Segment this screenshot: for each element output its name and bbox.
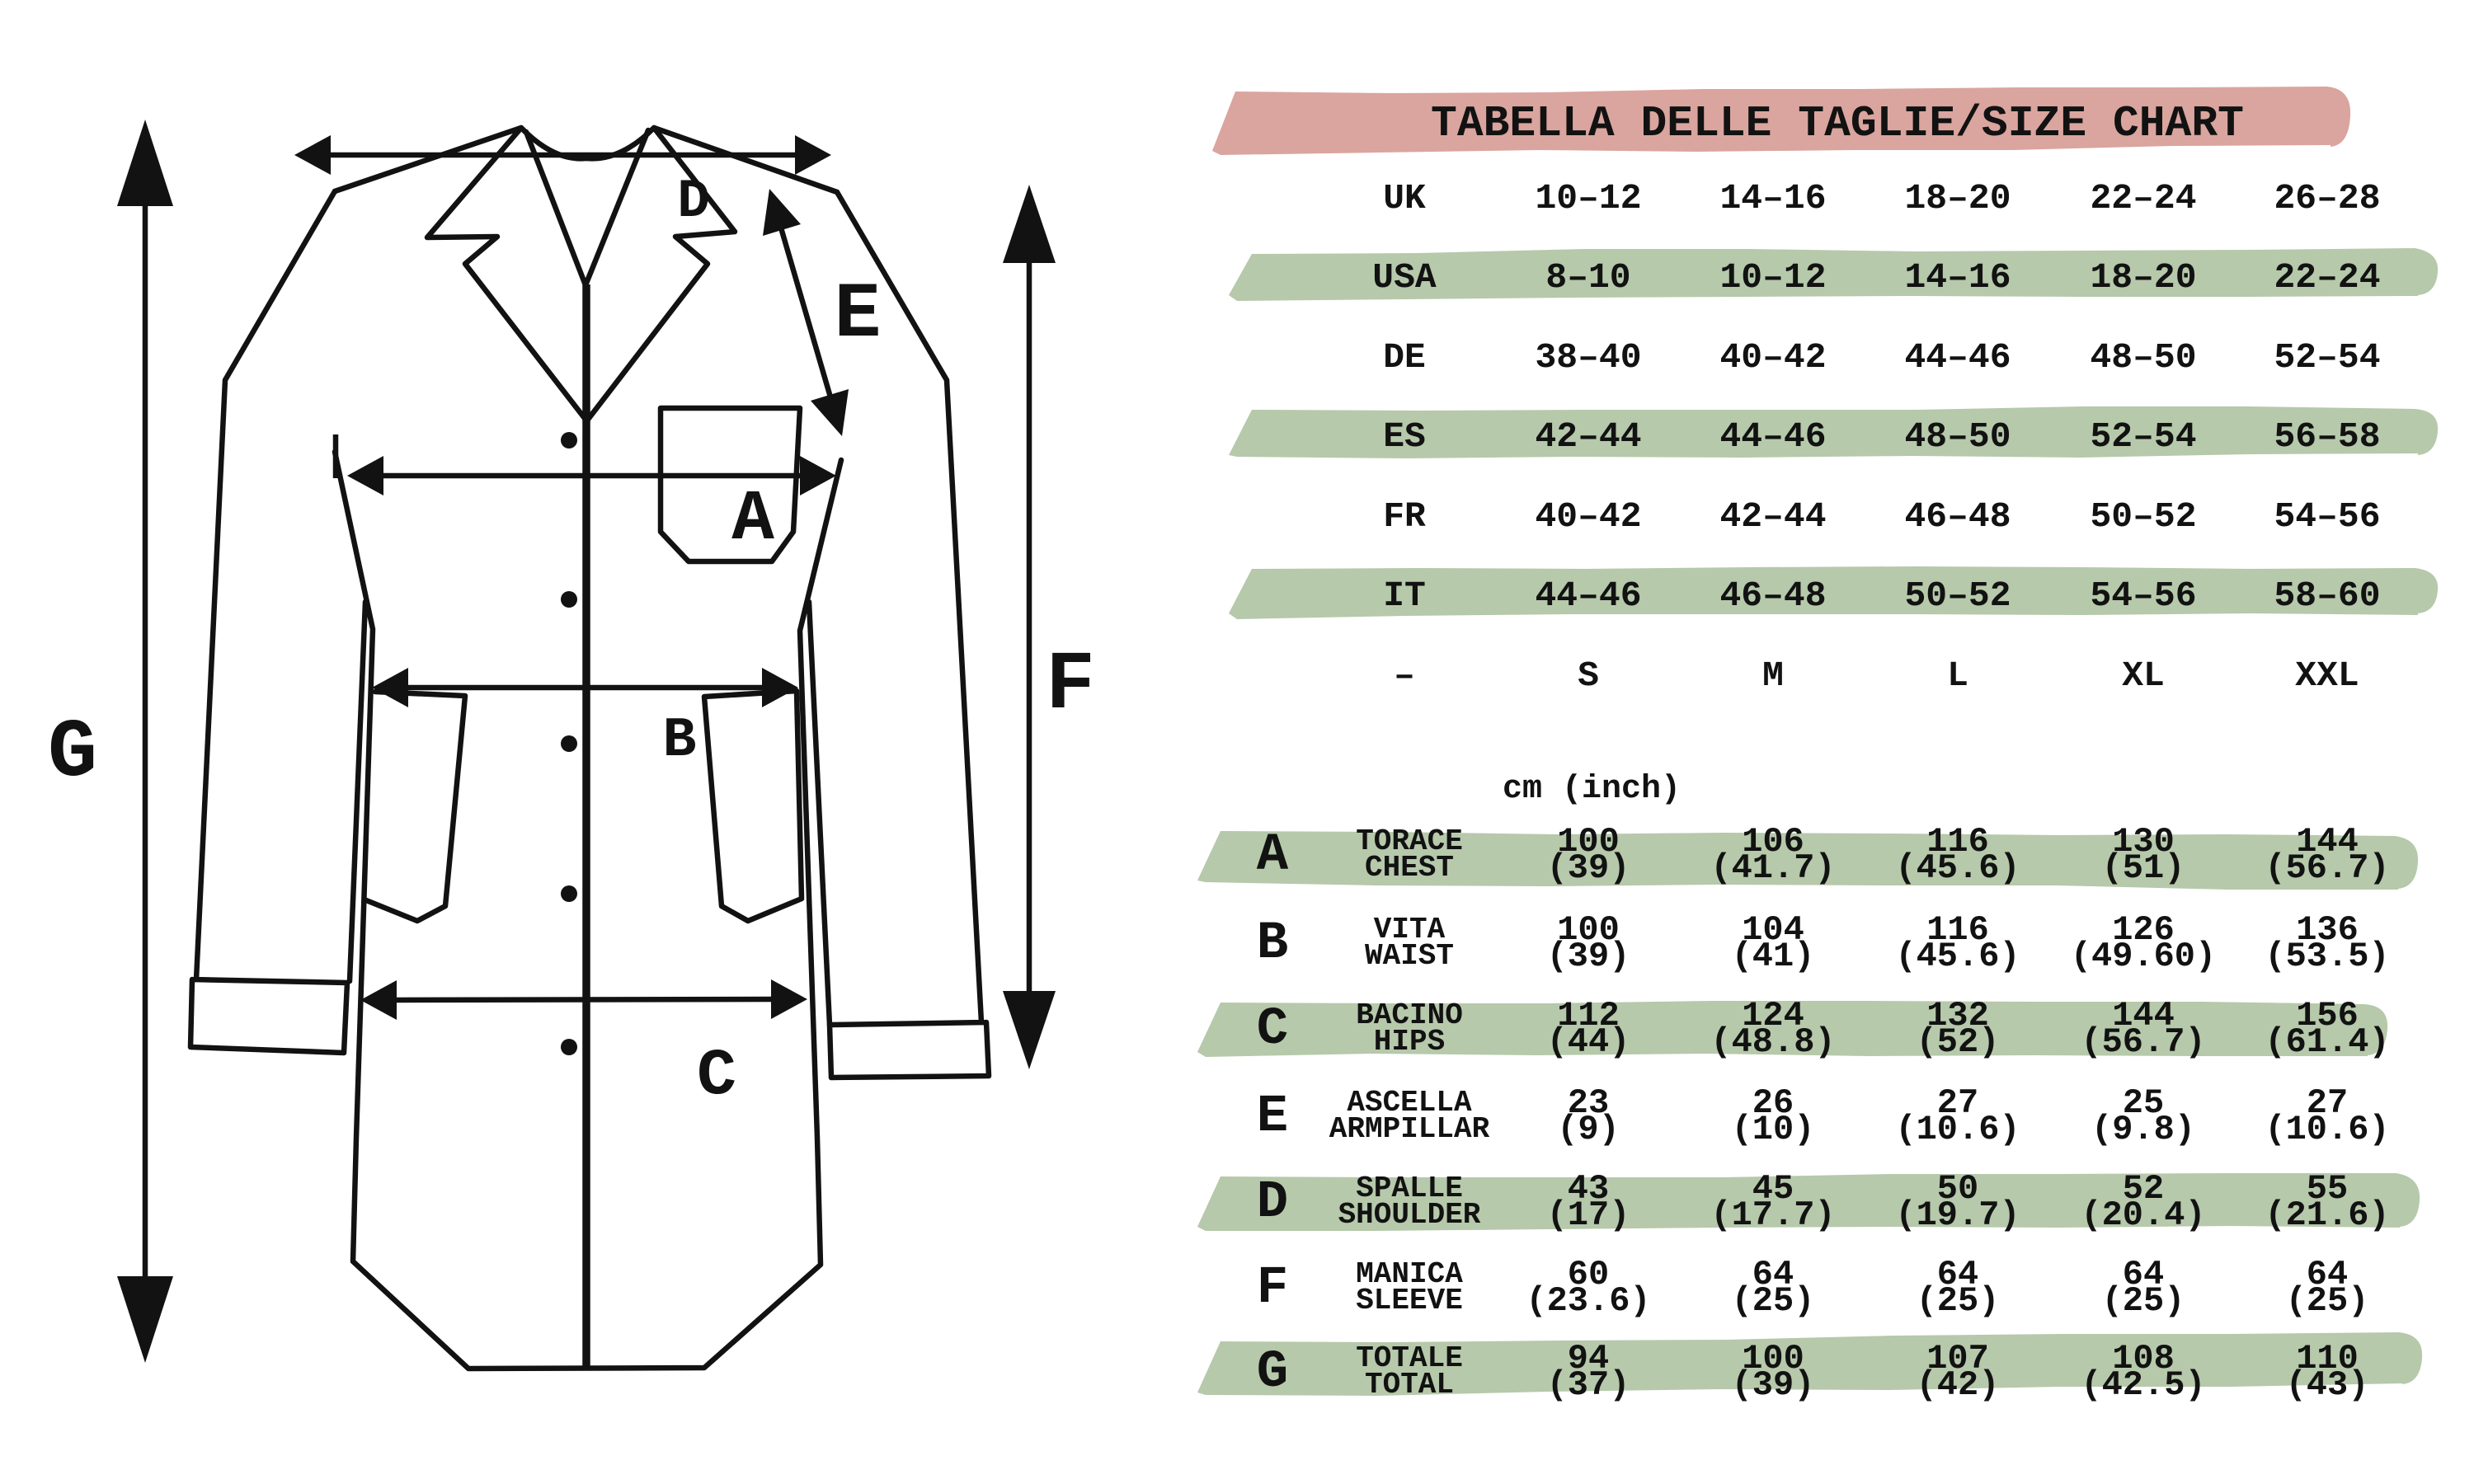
svg-text:IT: IT: [1383, 575, 1426, 616]
svg-text:42–44: 42–44: [1535, 416, 1641, 457]
svg-text:B: B: [663, 709, 697, 773]
svg-text:cm (inch): cm (inch): [1503, 771, 1681, 808]
svg-text:C: C: [1257, 1000, 1288, 1059]
svg-text:48–50: 48–50: [2090, 337, 2196, 378]
svg-text:52–54: 52–54: [2274, 337, 2380, 378]
svg-text:(10): (10): [1732, 1110, 1815, 1149]
svg-text:52–54: 52–54: [2090, 416, 2196, 457]
svg-text:(10.6): (10.6): [2265, 1110, 2389, 1149]
svg-text:B: B: [1257, 914, 1288, 974]
svg-text:A: A: [1257, 826, 1289, 885]
svg-text:UK: UK: [1383, 178, 1426, 218]
svg-text:(45.6): (45.6): [1895, 848, 2020, 888]
svg-text:8–10: 8–10: [1545, 257, 1630, 298]
svg-text:(56.7): (56.7): [2265, 848, 2389, 888]
svg-text:(51): (51): [2102, 848, 2185, 888]
svg-text:SHOULDER: SHOULDER: [1338, 1198, 1481, 1232]
svg-text:XL: XL: [2122, 655, 2165, 696]
svg-text:USA: USA: [1372, 257, 1437, 298]
svg-text:40–42: 40–42: [1719, 337, 1826, 378]
svg-text:(17.7): (17.7): [1710, 1195, 1835, 1235]
svg-text:48–50: 48–50: [1904, 416, 2011, 457]
svg-text:G: G: [48, 707, 97, 801]
svg-text:(39): (39): [1547, 848, 1630, 888]
svg-text:14–16: 14–16: [1719, 178, 1826, 218]
svg-text:(52): (52): [1917, 1022, 2000, 1062]
svg-text:50–52: 50–52: [2090, 496, 2196, 537]
svg-text:C: C: [697, 1039, 736, 1114]
svg-text:(25): (25): [1732, 1281, 1815, 1321]
svg-text:54–56: 54–56: [2274, 496, 2380, 537]
svg-text:(61.4): (61.4): [2265, 1022, 2389, 1062]
svg-text:(20.4): (20.4): [2081, 1195, 2205, 1235]
svg-text:44–46: 44–46: [1535, 575, 1641, 616]
svg-text:(53.5): (53.5): [2265, 937, 2389, 976]
svg-text:CHEST: CHEST: [1365, 851, 1454, 885]
svg-text:E: E: [1257, 1087, 1288, 1147]
svg-text:14–16: 14–16: [1904, 257, 2011, 298]
svg-text:D: D: [1257, 1173, 1288, 1233]
svg-text:(9): (9): [1557, 1110, 1620, 1149]
svg-text:HIPS: HIPS: [1374, 1025, 1445, 1059]
svg-text:50–52: 50–52: [1904, 575, 2011, 616]
svg-text:44–46: 44–46: [1719, 416, 1826, 457]
svg-text:(43): (43): [2286, 1365, 2369, 1405]
svg-text:(19.7): (19.7): [1895, 1195, 2020, 1235]
svg-text:26–28: 26–28: [2274, 178, 2380, 218]
svg-text:S: S: [1578, 655, 1599, 696]
svg-text:(42): (42): [1917, 1365, 2000, 1405]
svg-text:46–48: 46–48: [1719, 575, 1826, 616]
svg-text:TOTAL: TOTAL: [1365, 1368, 1454, 1402]
svg-text:F: F: [1046, 640, 1095, 733]
svg-text:58–60: 58–60: [2274, 575, 2380, 616]
svg-text:10–12: 10–12: [1719, 257, 1826, 298]
svg-text:A: A: [731, 479, 774, 560]
svg-text:(17): (17): [1547, 1195, 1630, 1235]
svg-text:TABELLA DELLE TAGLIE/SIZE CHAR: TABELLA DELLE TAGLIE/SIZE CHART: [1431, 99, 2244, 148]
svg-text:(21.6): (21.6): [2265, 1195, 2389, 1235]
svg-text:(37): (37): [1547, 1365, 1630, 1405]
svg-text:(44): (44): [1547, 1022, 1630, 1062]
svg-text:L: L: [1947, 655, 1968, 696]
svg-text:10–12: 10–12: [1535, 178, 1641, 218]
svg-text:22–24: 22–24: [2090, 178, 2196, 218]
svg-text:F: F: [1257, 1259, 1288, 1318]
svg-text:38–40: 38–40: [1535, 337, 1641, 378]
svg-text:(41): (41): [1732, 937, 1815, 976]
svg-text:D: D: [677, 171, 710, 232]
svg-text:56–58: 56–58: [2274, 416, 2380, 457]
svg-text:(25): (25): [2102, 1281, 2185, 1321]
svg-text:54–56: 54–56: [2090, 575, 2196, 616]
svg-text:G: G: [1257, 1343, 1288, 1402]
svg-text:(41.7): (41.7): [1710, 848, 1835, 888]
svg-text:ARMPILLAR: ARMPILLAR: [1329, 1112, 1490, 1146]
svg-text:(48.8): (48.8): [1710, 1022, 1835, 1062]
svg-text:(39): (39): [1732, 1365, 1815, 1405]
svg-text:E: E: [834, 270, 881, 359]
svg-text:XXL: XXL: [2295, 655, 2359, 696]
svg-text:(23.6): (23.6): [1526, 1281, 1650, 1321]
svg-text:(25): (25): [1917, 1281, 2000, 1321]
svg-text:42–44: 42–44: [1719, 496, 1826, 537]
svg-text:(25): (25): [2286, 1281, 2369, 1321]
svg-text:18–20: 18–20: [1904, 178, 2011, 218]
svg-text:(39): (39): [1547, 937, 1630, 976]
svg-text:18–20: 18–20: [2090, 257, 2196, 298]
svg-text:(10.6): (10.6): [1895, 1110, 2020, 1149]
svg-text:FR: FR: [1383, 496, 1426, 537]
svg-text:40–42: 40–42: [1535, 496, 1641, 537]
svg-text:DE: DE: [1383, 337, 1426, 378]
svg-text:M: M: [1762, 655, 1784, 696]
svg-text:(45.6): (45.6): [1895, 937, 2020, 976]
svg-text:(56.7): (56.7): [2081, 1022, 2205, 1062]
svg-text:44–46: 44–46: [1904, 337, 2011, 378]
svg-text:SLEEVE: SLEEVE: [1356, 1284, 1463, 1317]
svg-text:(42.5): (42.5): [2081, 1365, 2205, 1405]
svg-text:22–24: 22–24: [2274, 257, 2380, 298]
svg-text:ES: ES: [1383, 416, 1426, 457]
svg-text:(49.60): (49.60): [2071, 937, 2216, 976]
svg-text:–: –: [1394, 655, 1415, 696]
svg-text:46–48: 46–48: [1904, 496, 2011, 537]
svg-text:(9.8): (9.8): [2091, 1110, 2195, 1149]
svg-text:WAIST: WAIST: [1365, 939, 1454, 973]
